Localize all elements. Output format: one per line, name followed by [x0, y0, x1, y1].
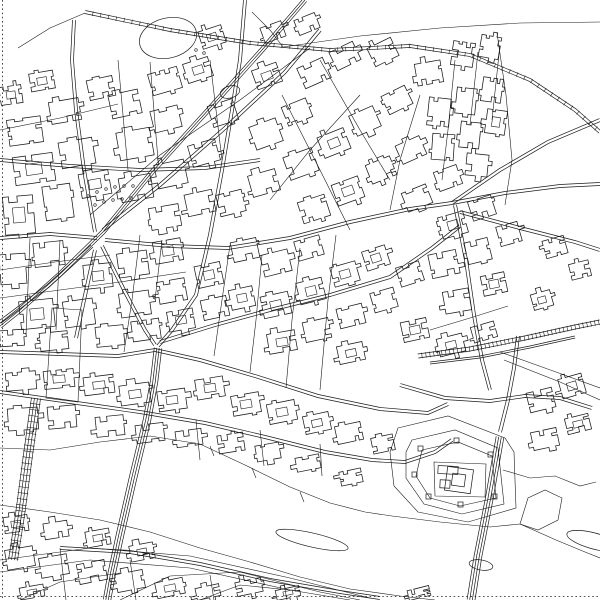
- map-sheet: [0, 0, 600, 600]
- map-canvas: [0, 0, 600, 600]
